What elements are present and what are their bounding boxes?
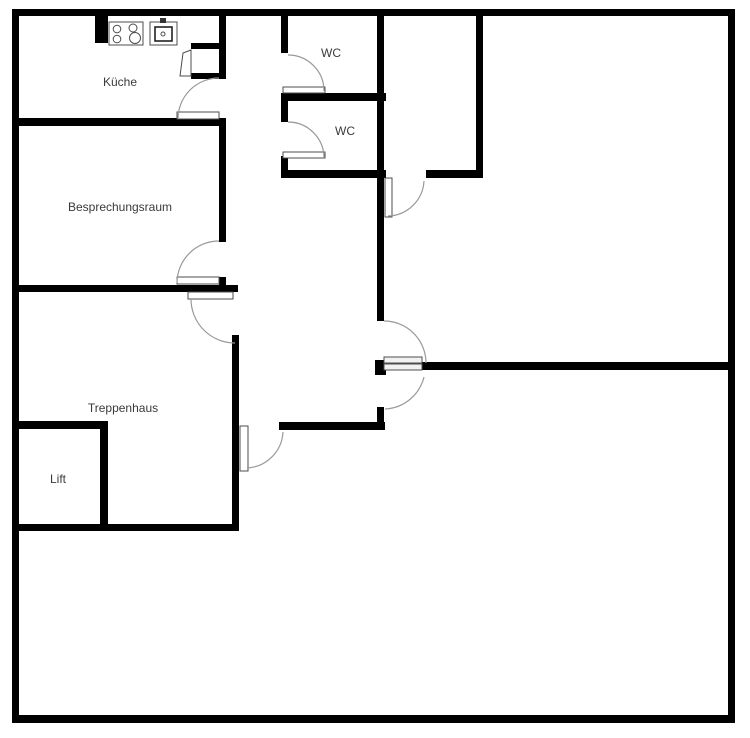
besprechungsraum-east-hinge-stub xyxy=(219,277,226,285)
wall-bottom xyxy=(12,715,735,723)
room-label-wc-top: WC xyxy=(321,46,341,60)
besprechungsraum-east-wall xyxy=(219,126,226,242)
room-label-treppenhaus: Treppenhaus xyxy=(88,401,158,415)
kitchen-fixtures xyxy=(109,18,177,45)
stove-icon xyxy=(109,22,143,45)
lift-east-wall xyxy=(100,421,108,531)
floor-plan-canvas: Küche Besprechungsraum WC WC Treppenhaus… xyxy=(0,0,750,738)
corridor-east-wall xyxy=(377,13,384,321)
sink-icon xyxy=(150,18,177,45)
floor-plan: Küche Besprechungsraum WC WC Treppenhaus… xyxy=(0,0,750,738)
hall-treppenhaus-door-arc xyxy=(191,299,235,343)
door-leaves xyxy=(177,50,422,471)
niche-door-leaf xyxy=(180,50,191,76)
wc2-door-leaf xyxy=(283,152,325,158)
wc1-south-wall xyxy=(281,93,386,101)
treppenhaus-east-wall xyxy=(232,335,239,531)
wall-top xyxy=(12,9,735,16)
treppenhaus-door-leaf xyxy=(240,426,248,471)
kueche-wall-block xyxy=(95,16,108,43)
topright-room-east-wall xyxy=(476,13,483,178)
besprechungsraum-door-leaf xyxy=(177,277,219,284)
room-label-lift: Lift xyxy=(50,472,67,486)
treppenhaus-door-arc xyxy=(247,432,283,468)
topright-room-south-wall xyxy=(426,170,483,178)
east-long-wall xyxy=(422,362,735,370)
center-double-door-leaf-lower xyxy=(384,364,422,370)
room-label-besprechungsraum: Besprechungsraum xyxy=(68,200,172,214)
wc2-south-wall xyxy=(281,170,386,178)
wc1-door-leaf xyxy=(283,87,325,93)
kueche-door-leaf xyxy=(177,112,219,119)
topright-room-door-arc xyxy=(388,181,424,216)
treppenhaus-south-wall xyxy=(12,524,238,531)
wall-left xyxy=(12,9,19,723)
center-double-door-leaf-upper xyxy=(384,357,422,363)
wc1-west-wall xyxy=(281,13,288,53)
wc1-door-arc xyxy=(288,55,324,91)
center-double-door-arc-down xyxy=(385,377,424,409)
topright-room-door-leaf xyxy=(385,178,392,217)
wc2-west-wall xyxy=(281,101,288,122)
niche-north-wall xyxy=(191,43,226,49)
corridor-south-wall xyxy=(279,422,385,430)
room-label-kueche: Küche xyxy=(103,75,137,89)
besprechungsraum-south-wall xyxy=(12,285,238,292)
hall-treppenhaus-door-leaf xyxy=(188,292,233,299)
lift-north-wall xyxy=(12,421,108,429)
room-label-wc-bottom: WC xyxy=(335,124,355,138)
